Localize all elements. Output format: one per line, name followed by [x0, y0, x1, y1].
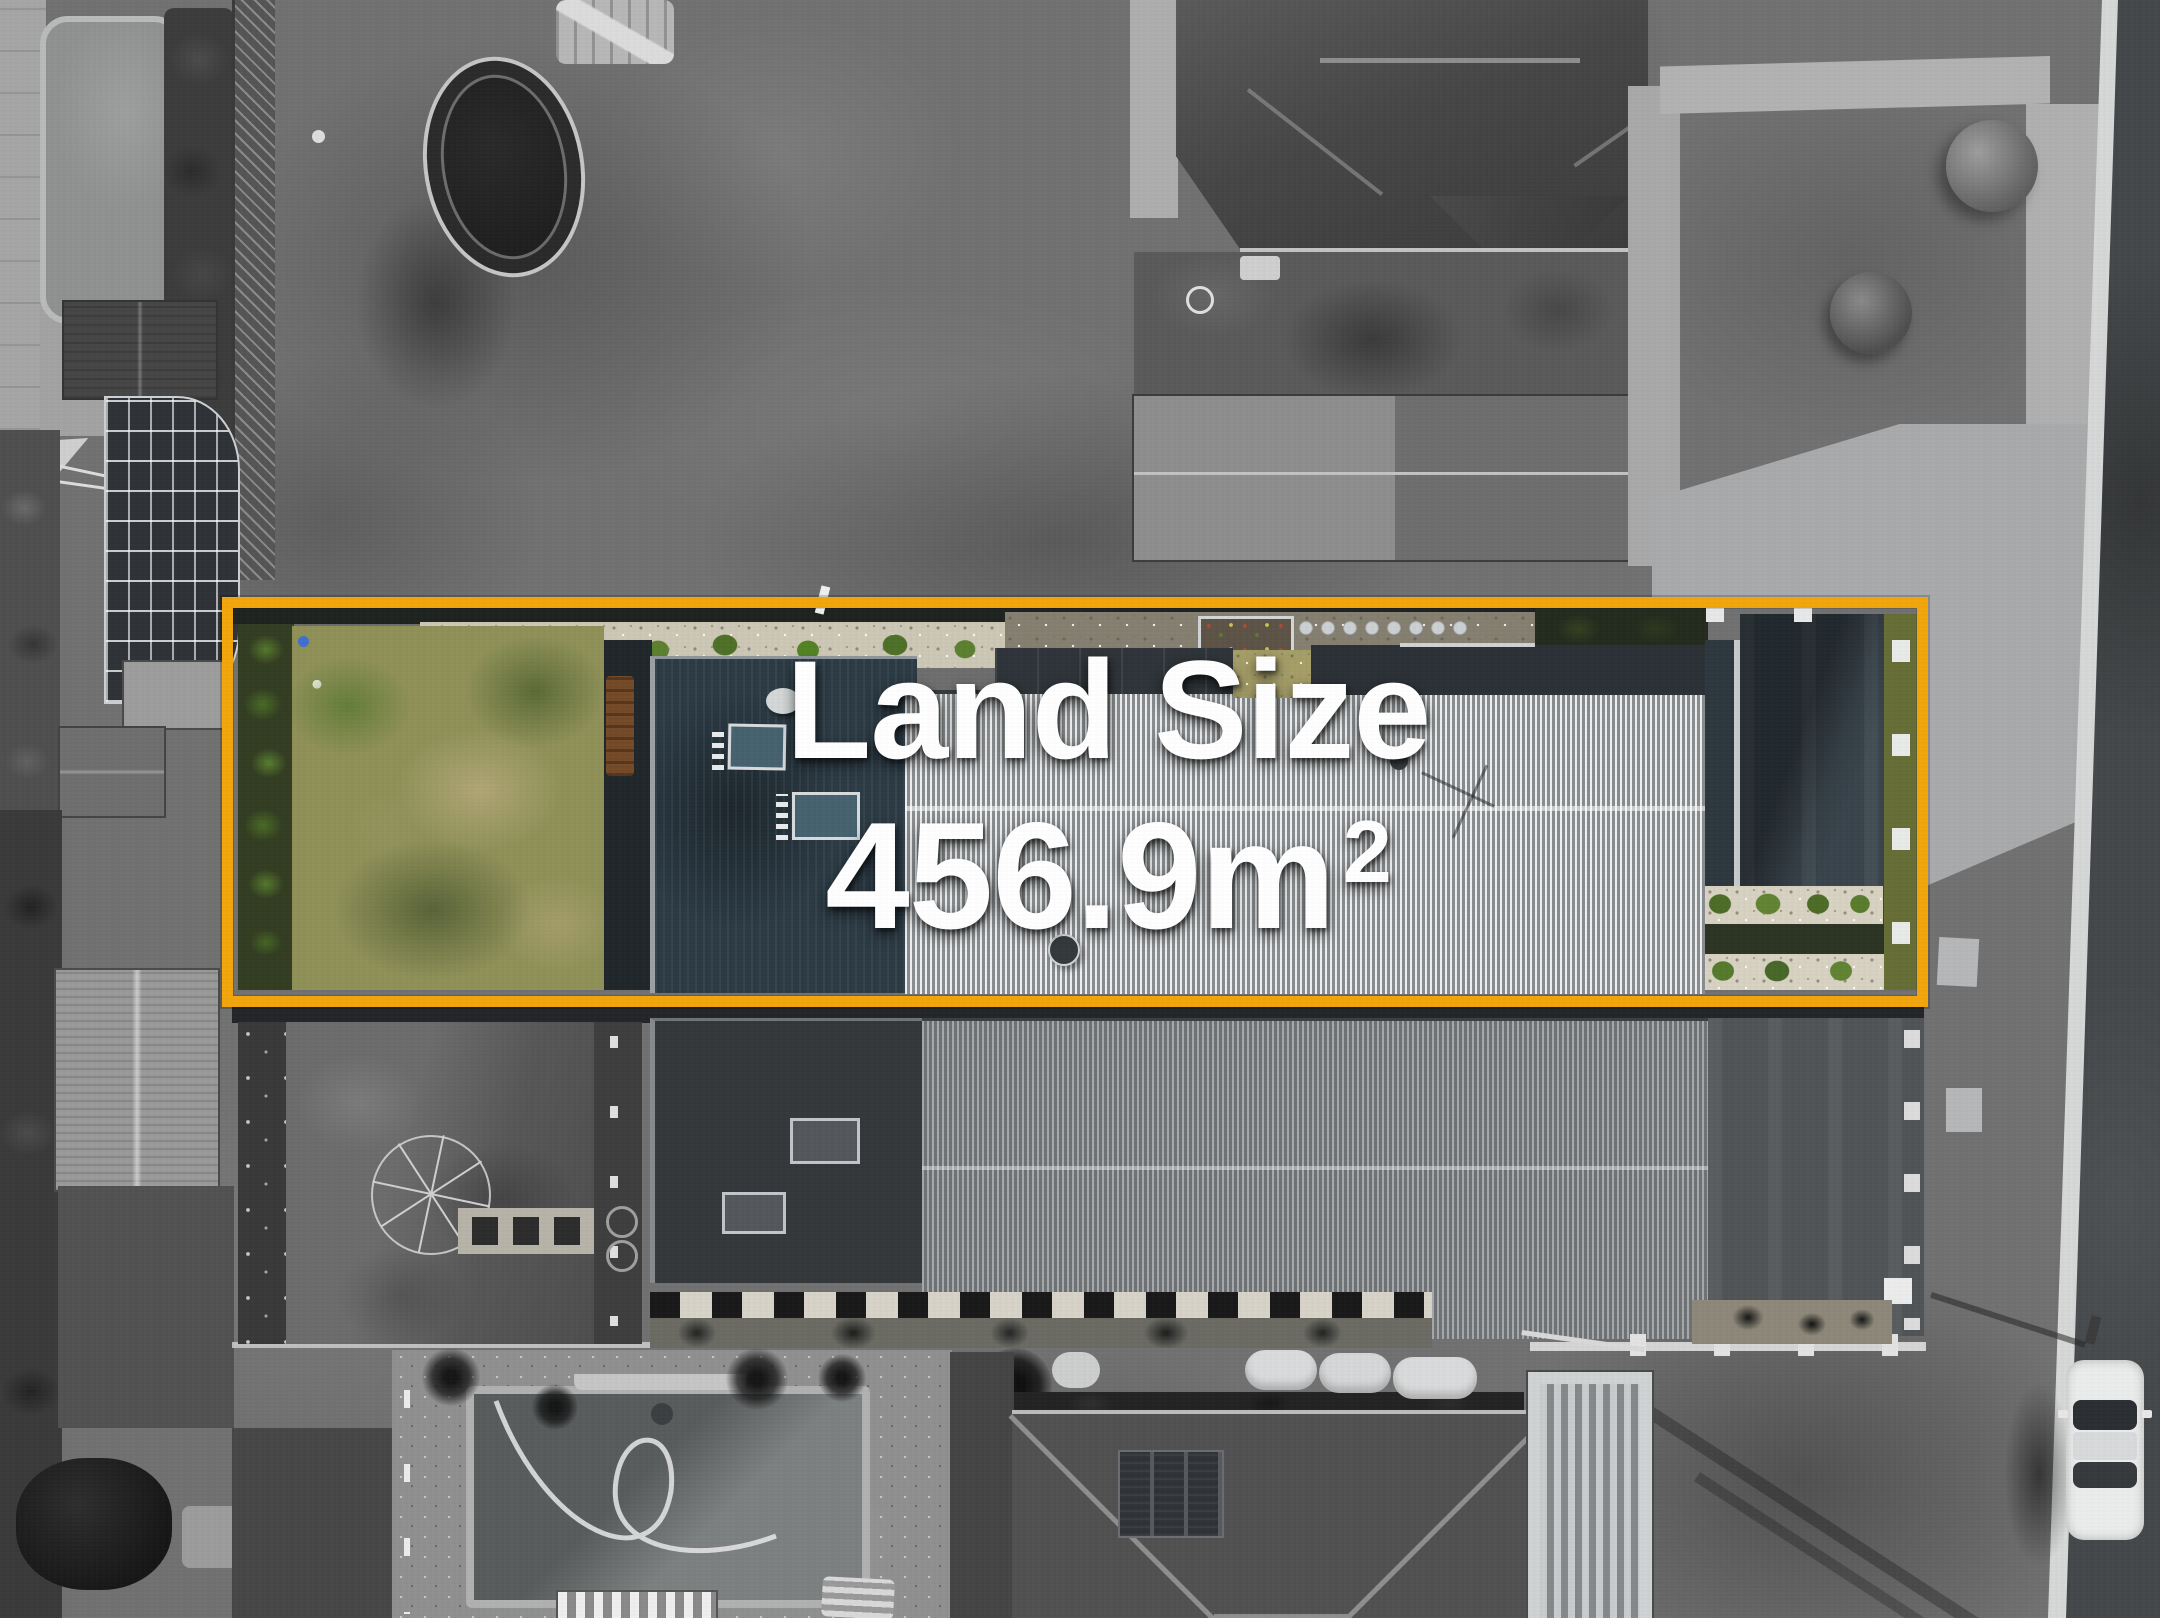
- roof-hip-line: [1342, 1414, 1552, 1618]
- shed-ridge: [1134, 472, 1652, 475]
- paver-square-dark: [472, 1217, 498, 1245]
- garden-shed-large: [1132, 394, 1658, 562]
- bicycle-wheel: [606, 1206, 638, 1238]
- roof-ridge: [1320, 58, 1580, 63]
- unit2-paver-walk: [650, 1292, 1432, 1318]
- car-windshield: [2073, 1400, 2137, 1430]
- tree-ball: [1946, 120, 2038, 212]
- slat-bench: [556, 1590, 718, 1618]
- left-clutter-yard: [0, 430, 60, 820]
- garden-bed-2: [238, 1022, 286, 1344]
- unit2-skylight: [790, 1118, 860, 1164]
- palm-tree: [726, 1348, 788, 1410]
- tree-ball: [1830, 272, 1912, 354]
- unit2-main-roof: [922, 1018, 1708, 1339]
- palm-tree: [532, 1384, 578, 1430]
- car-mirror-left: [2058, 1410, 2068, 1418]
- top-footpath: [1660, 56, 2050, 114]
- paver-square-dark: [554, 1217, 580, 1245]
- house3-roof: [1012, 1414, 1548, 1618]
- playground-slide: [556, 0, 674, 64]
- bicycle-wheel: [606, 1240, 638, 1272]
- palm-tree: [422, 1348, 480, 1406]
- land-size-number: 456.9m: [825, 791, 1335, 961]
- bottom-left-paving: [232, 1428, 392, 1618]
- neighbor-pool: [40, 16, 182, 324]
- roof-ridge: [1214, 1614, 1348, 1618]
- land-size-title: Land Size: [258, 640, 1958, 780]
- sun-lounge: [821, 1576, 895, 1618]
- unit2-skylight: [722, 1192, 786, 1234]
- dividing-fence: [594, 1022, 642, 1344]
- garden-shed-roof: [62, 300, 218, 400]
- backyard-patio: [1134, 252, 1664, 398]
- air-conditioner: [1240, 256, 1280, 280]
- car-mirror-right: [2142, 1410, 2152, 1418]
- unit2-roof-ridge: [922, 1166, 1708, 1170]
- unit2-rear-roof: [650, 1018, 923, 1283]
- basketball-hoop: [1186, 286, 1214, 314]
- unit2-front-garden: [1692, 1300, 1892, 1344]
- car-rear-window: [2073, 1462, 2137, 1488]
- driveway-apron: [1652, 424, 2102, 602]
- parked-car: [2066, 1360, 2144, 1540]
- unit2-garden-band: [650, 1318, 1432, 1348]
- fence-post-caps: [610, 1036, 618, 1326]
- pergola: [1528, 1372, 1652, 1618]
- water-tank: [1319, 1353, 1391, 1393]
- solar-panels: [1118, 1450, 1224, 1538]
- water-tank: [1245, 1350, 1317, 1390]
- pool-cleaner-hose: [466, 1386, 854, 1592]
- garden-ball: [312, 130, 325, 143]
- small-ribbed-roof: [122, 660, 230, 730]
- paver-pad: [458, 1208, 594, 1254]
- deck-divider: [950, 1352, 1014, 1618]
- palm-tree: [818, 1354, 866, 1402]
- greenhouse-roof: [104, 396, 240, 704]
- pool-deck-posts: [404, 1390, 410, 1614]
- water-tank: [1393, 1357, 1477, 1399]
- paver-square-dark: [513, 1217, 539, 1245]
- hedge-ball: [16, 1458, 172, 1590]
- land-size-value: 456.9m2: [258, 800, 1958, 952]
- barn-roof-left: [54, 968, 220, 1192]
- aerial-photo: Land Size 456.9m2: [0, 0, 2160, 1618]
- paver-square: [1946, 1088, 1982, 1132]
- left-courtyard: [58, 1186, 234, 1428]
- water-tank: [1052, 1352, 1100, 1388]
- gabled-roof-left: [58, 726, 166, 818]
- car-roof: [2073, 1432, 2137, 1460]
- neighbor-house-wing: [1130, 0, 1178, 218]
- land-size-superscript: 2: [1343, 802, 1391, 901]
